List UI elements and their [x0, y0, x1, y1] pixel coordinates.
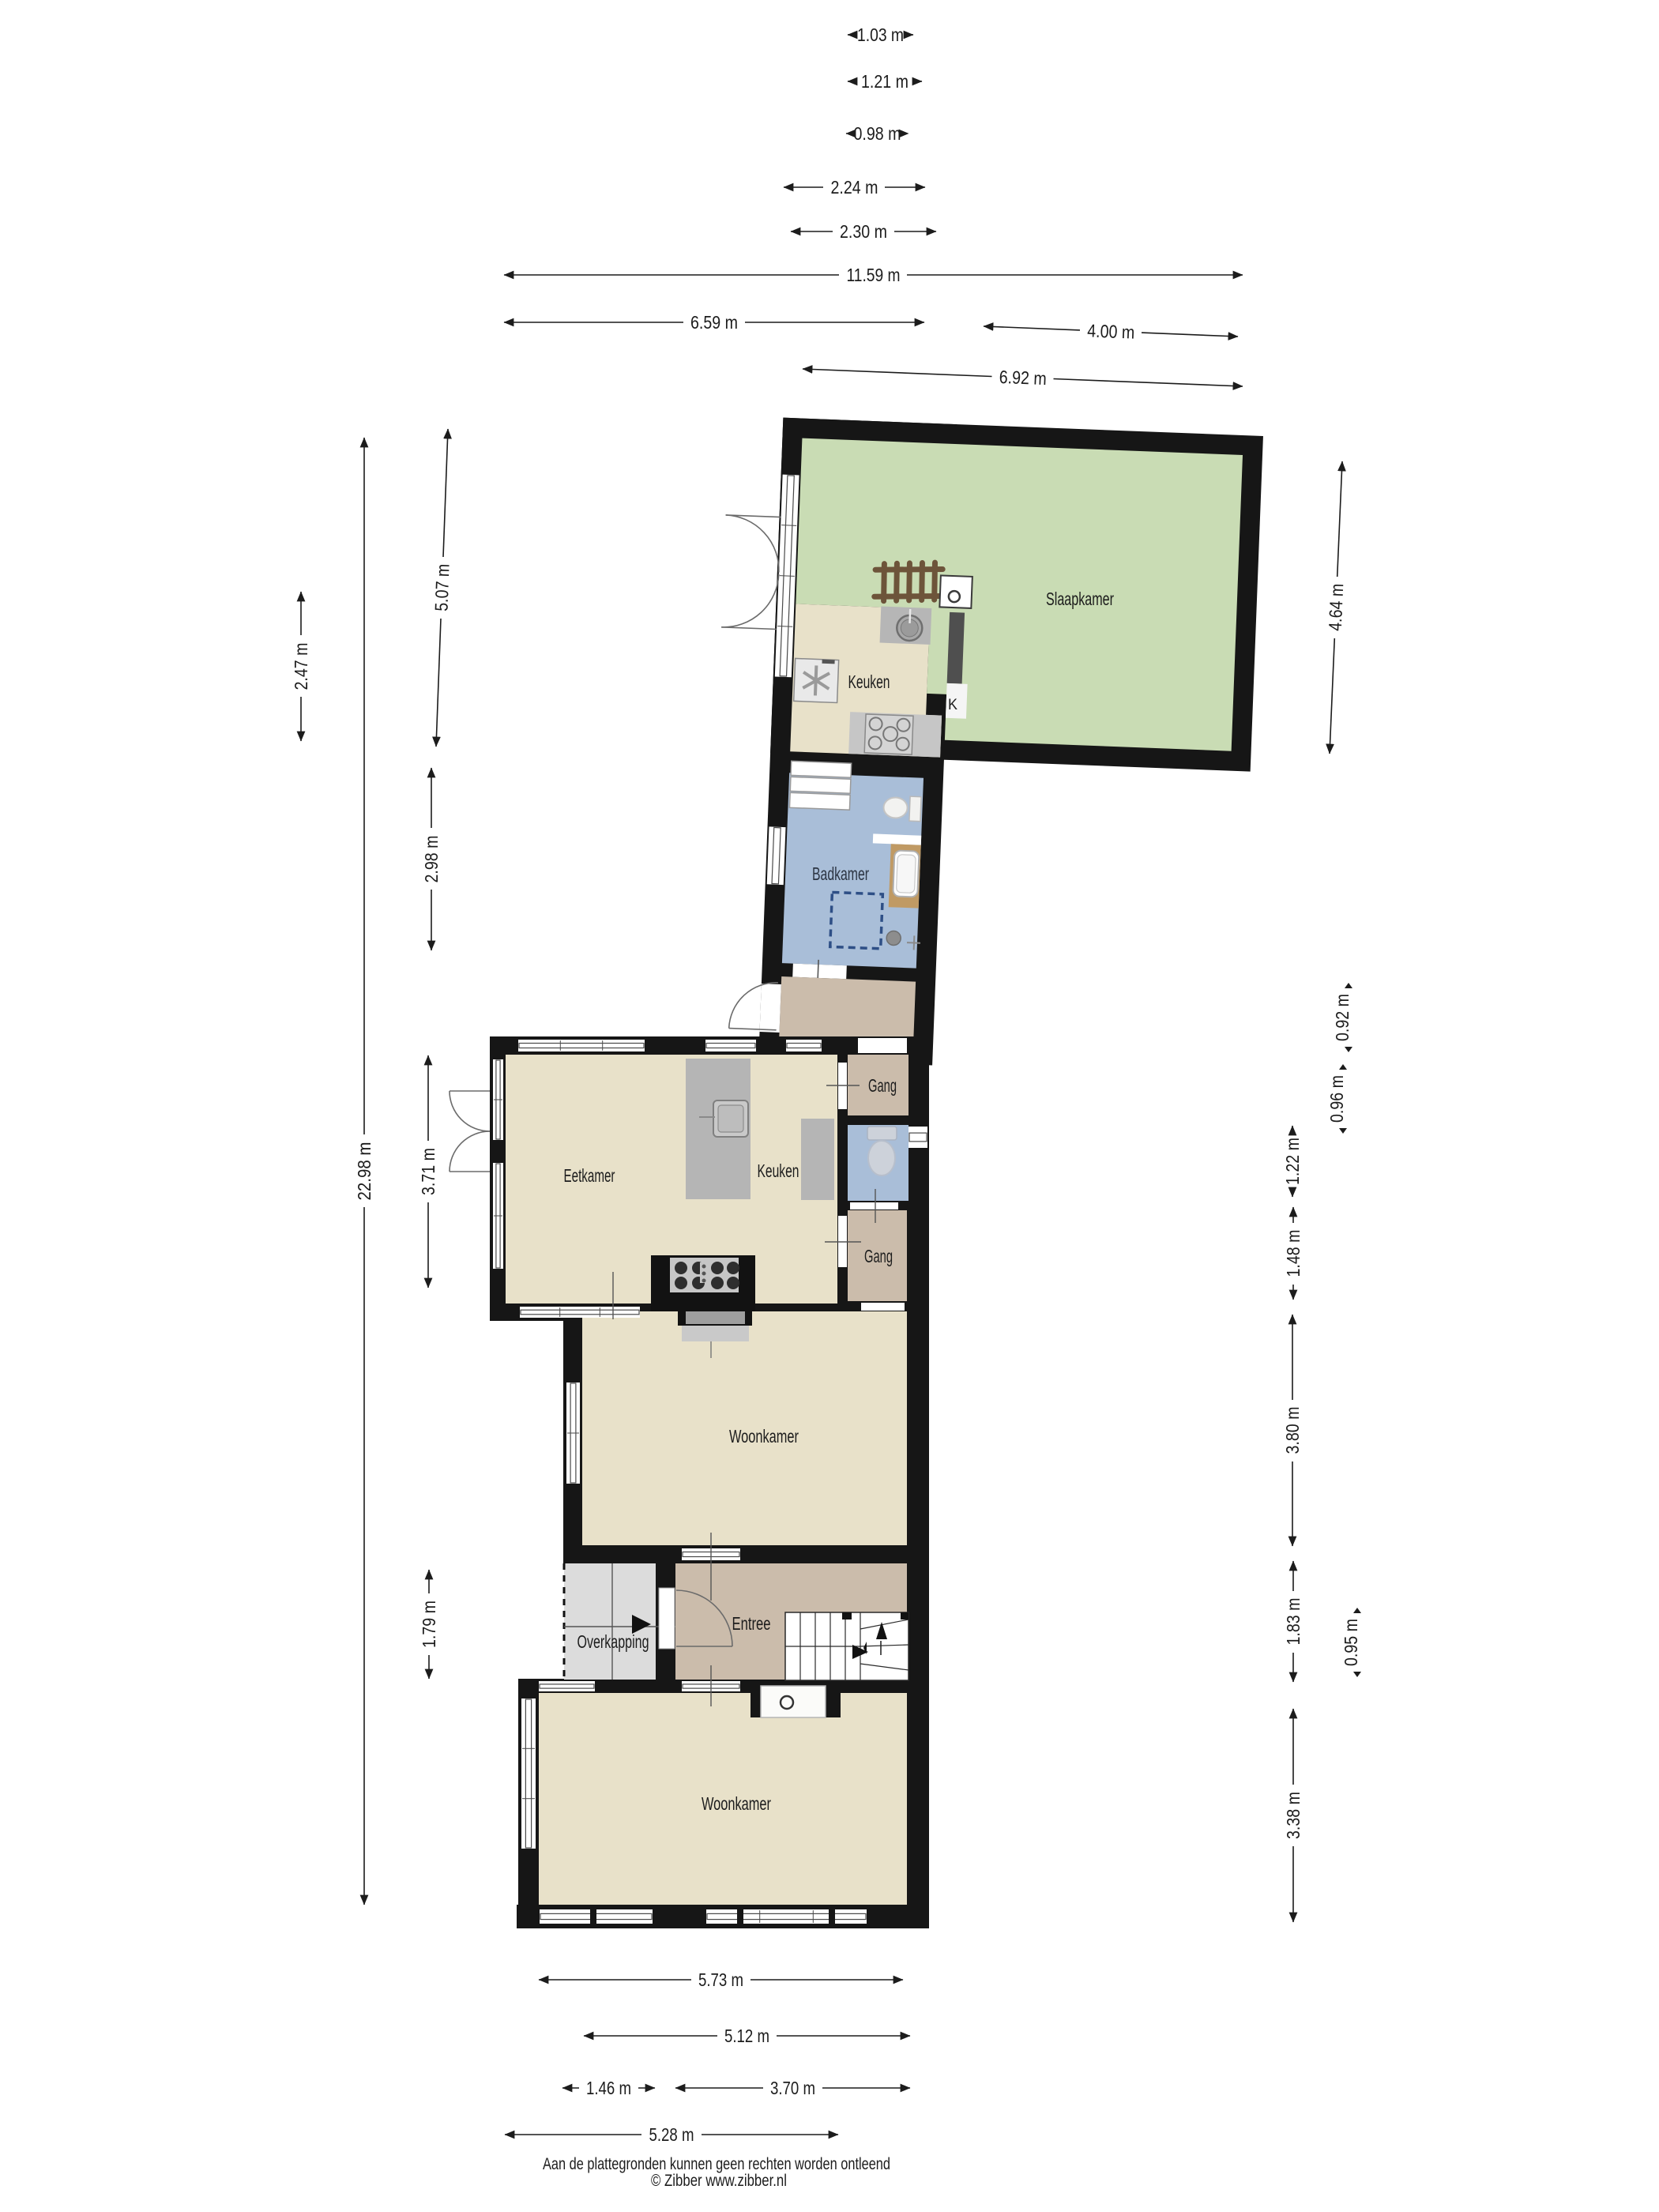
- svg-text:3.71 m: 3.71 m: [418, 1148, 438, 1195]
- svg-text:Slaapkamer: Slaapkamer: [1046, 589, 1114, 609]
- svg-text:5.12 m: 5.12 m: [724, 2026, 769, 2046]
- svg-text:Gang: Gang: [868, 1075, 897, 1096]
- svg-text:1.22 m: 1.22 m: [1282, 1138, 1303, 1185]
- svg-text:Keuken: Keuken: [758, 1161, 799, 1181]
- svg-text:22.98 m: 22.98 m: [354, 1142, 374, 1201]
- svg-text:2.47 m: 2.47 m: [291, 643, 311, 690]
- svg-text:K: K: [948, 697, 957, 713]
- svg-text:Woonkamer: Woonkamer: [729, 1426, 799, 1446]
- svg-text:1.83 m: 1.83 m: [1283, 1598, 1303, 1646]
- svg-text:3.70 m: 3.70 m: [770, 2078, 815, 2098]
- svg-text:Badkamer: Badkamer: [812, 863, 869, 884]
- svg-text:0.92 m: 0.92 m: [1332, 994, 1352, 1041]
- svg-text:2.24 m: 2.24 m: [831, 177, 878, 197]
- svg-text:0.98 m: 0.98 m: [854, 123, 901, 144]
- svg-text:4.00 m: 4.00 m: [1087, 320, 1135, 342]
- svg-text:6.92 m: 6.92 m: [999, 367, 1047, 389]
- svg-text:11.59 m: 11.59 m: [847, 265, 901, 285]
- svg-text:Gang: Gang: [864, 1246, 893, 1266]
- svg-text:1.79 m: 1.79 m: [419, 1601, 439, 1648]
- svg-text:5.73 m: 5.73 m: [698, 1969, 743, 1990]
- svg-text:Aan de plattegronden kunnen ge: Aan de plattegronden kunnen geen rechten…: [543, 2155, 890, 2173]
- svg-text:1.46 m: 1.46 m: [586, 2078, 631, 2098]
- svg-text:0.95 m: 0.95 m: [1341, 1619, 1361, 1666]
- svg-text:2.30 m: 2.30 m: [840, 221, 887, 242]
- svg-text:1.21 m: 1.21 m: [861, 71, 908, 92]
- svg-text:3.38 m: 3.38 m: [1283, 1792, 1303, 1839]
- svg-text:5.07 m: 5.07 m: [431, 563, 453, 611]
- svg-text:3.80 m: 3.80 m: [1282, 1407, 1303, 1454]
- svg-text:Entree: Entree: [732, 1613, 771, 1634]
- svg-text:1.03 m: 1.03 m: [857, 24, 904, 45]
- svg-text:Overkapping: Overkapping: [577, 1631, 649, 1652]
- svg-text:© Zibber www.zibber.nl: © Zibber www.zibber.nl: [651, 2172, 787, 2190]
- svg-text:5.28 m: 5.28 m: [649, 2124, 694, 2145]
- svg-text:Woonkamer: Woonkamer: [702, 1793, 771, 1814]
- svg-text:0.96 m: 0.96 m: [1326, 1075, 1347, 1123]
- svg-text:1.48 m: 1.48 m: [1283, 1230, 1303, 1277]
- svg-text:2.98 m: 2.98 m: [421, 836, 442, 883]
- svg-text:Eetkamer: Eetkamer: [564, 1165, 615, 1186]
- svg-text:4.64 m: 4.64 m: [1325, 583, 1348, 631]
- svg-text:6.59 m: 6.59 m: [690, 312, 738, 333]
- svg-text:Keuken: Keuken: [848, 671, 890, 692]
